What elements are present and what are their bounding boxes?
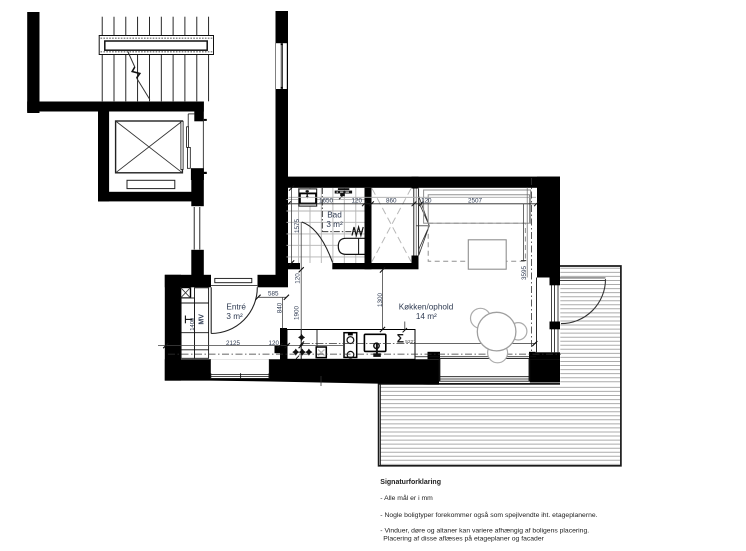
svg-text:- Nogle boligtyper forekommer: - Nogle boligtyper forekommer også som s… [380, 511, 597, 519]
svg-text:- Alle mål er i mm: - Alle mål er i mm [380, 494, 433, 502]
svg-text:2125: 2125 [226, 340, 241, 347]
svg-text:- Vinduer, døre og altaner kan: - Vinduer, døre og altaner kan variere a… [380, 527, 589, 534]
svg-text:Bad: Bad [327, 211, 342, 220]
svg-text:1300: 1300 [377, 293, 384, 308]
svg-text:3 m²: 3 m² [326, 220, 343, 229]
svg-text:840: 840 [277, 302, 284, 313]
svg-text:585: 585 [268, 290, 279, 297]
svg-text:5227: 5227 [405, 339, 416, 345]
svg-text:120: 120 [352, 197, 363, 204]
svg-text:2507: 2507 [468, 197, 483, 204]
svg-text:120: 120 [421, 197, 432, 204]
svg-text:120: 120 [295, 273, 302, 284]
svg-text:14 m²: 14 m² [416, 312, 437, 321]
svg-text:Entré: Entré [226, 303, 246, 312]
svg-text:Køkken/ophold: Køkken/ophold [399, 302, 454, 311]
svg-text:1650: 1650 [319, 197, 334, 204]
svg-text:Signaturforklaring: Signaturforklaring [380, 479, 441, 486]
svg-text:MV: MV [199, 314, 206, 325]
svg-text:120: 120 [269, 340, 280, 347]
svg-text:1900: 1900 [294, 306, 301, 321]
svg-text:3 m²: 3 m² [226, 312, 243, 321]
svg-text:Placering af disse aflæses på: Placering af disse aflæses på etageplane… [383, 535, 544, 543]
svg-text:860: 860 [386, 197, 397, 204]
svg-text:1575: 1575 [294, 219, 301, 234]
